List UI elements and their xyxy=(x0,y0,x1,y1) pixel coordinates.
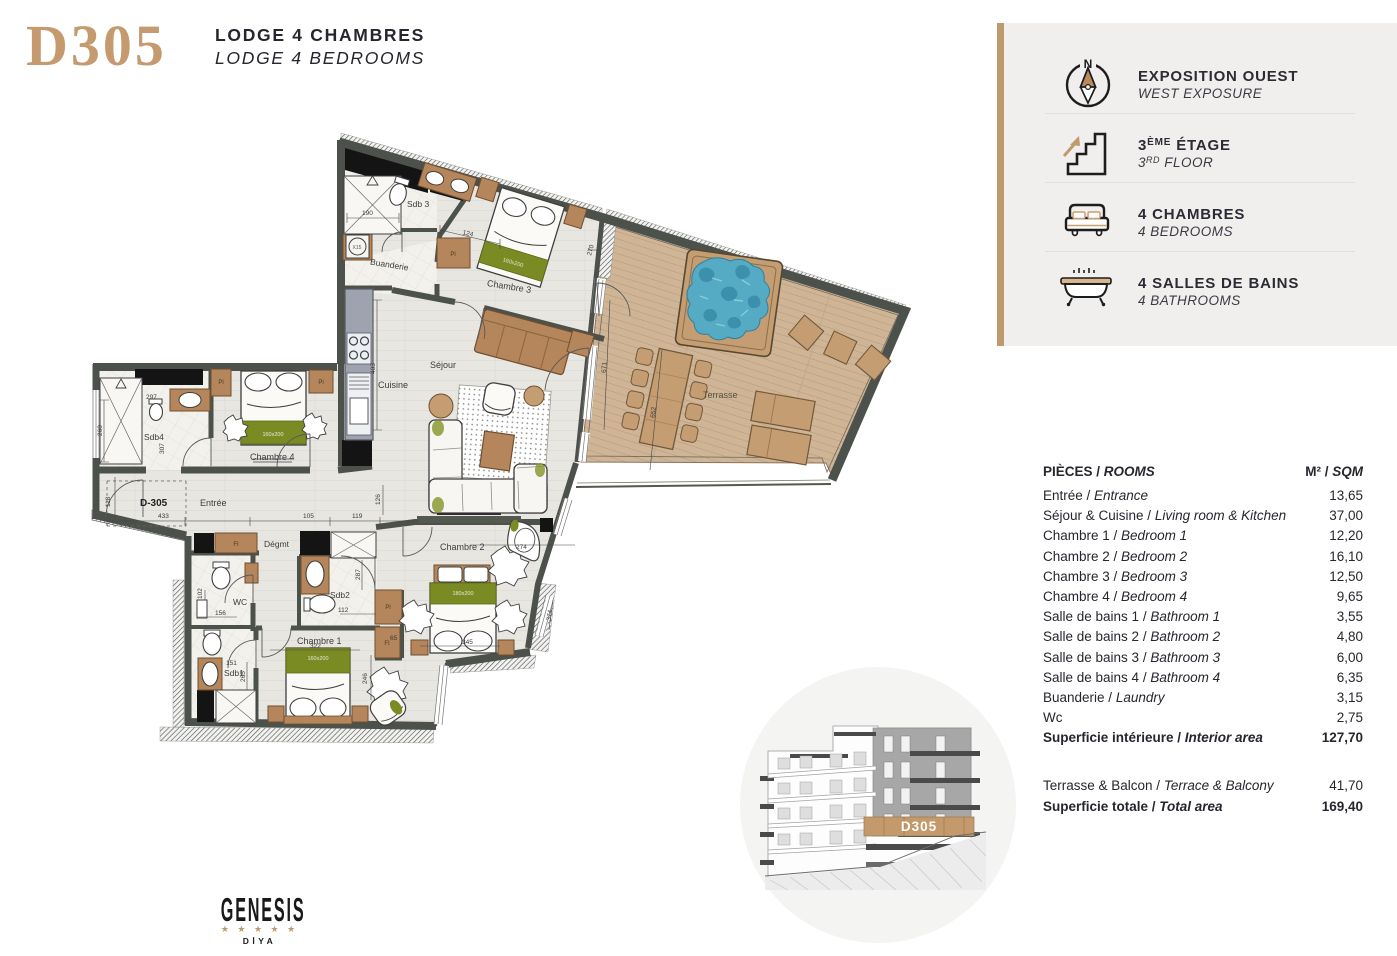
svg-text:Pl: Pl xyxy=(450,252,455,258)
svg-text:322: 322 xyxy=(310,643,321,650)
svg-text:274: 274 xyxy=(516,544,527,551)
svg-text:WC: WC xyxy=(233,597,247,607)
svg-text:287: 287 xyxy=(355,569,362,580)
svg-text:Entrée: Entrée xyxy=(200,498,227,508)
svg-text:433: 433 xyxy=(158,513,169,520)
svg-text:Séjour: Séjour xyxy=(430,360,456,370)
svg-text:112: 112 xyxy=(338,607,349,614)
svg-text:Cuisine: Cuisine xyxy=(378,380,408,390)
svg-text:151: 151 xyxy=(226,660,237,667)
svg-text:190: 190 xyxy=(362,210,373,217)
svg-text:FI: FI xyxy=(233,542,239,548)
svg-text:Pl: Pl xyxy=(218,380,223,386)
svg-text:246: 246 xyxy=(362,673,369,684)
svg-text:160x200: 160x200 xyxy=(307,656,328,662)
svg-text:Chambre 4: Chambre 4 xyxy=(250,452,295,462)
svg-text:374: 374 xyxy=(546,609,555,621)
svg-text:260: 260 xyxy=(97,425,104,436)
svg-text:Terrasse: Terrasse xyxy=(703,390,738,400)
svg-text:118: 118 xyxy=(105,496,112,507)
svg-text:307: 307 xyxy=(159,443,166,454)
svg-text:119: 119 xyxy=(352,513,363,520)
svg-text:Chambre 2: Chambre 2 xyxy=(440,542,485,552)
svg-text:102: 102 xyxy=(197,588,204,599)
svg-text:Pl: Pl xyxy=(318,380,323,386)
svg-text:D-305: D-305 xyxy=(140,498,168,509)
svg-text:Sdb 3: Sdb 3 xyxy=(407,199,429,209)
svg-text:105: 105 xyxy=(303,513,314,520)
svg-text:Sdb4: Sdb4 xyxy=(144,432,164,442)
svg-text:Sdb2: Sdb2 xyxy=(330,590,350,600)
svg-text:297: 297 xyxy=(146,394,157,401)
svg-text:X15: X15 xyxy=(353,245,362,251)
svg-text:403: 403 xyxy=(370,363,377,374)
svg-text:652: 652 xyxy=(650,406,658,418)
svg-text:Dégmt: Dégmt xyxy=(264,539,290,549)
svg-text:180x200: 180x200 xyxy=(452,591,473,597)
svg-text:671: 671 xyxy=(601,361,609,373)
svg-text:126: 126 xyxy=(375,494,382,505)
svg-text:265: 265 xyxy=(240,671,247,682)
svg-text:156: 156 xyxy=(215,610,226,617)
svg-text:345: 345 xyxy=(462,639,473,646)
svg-text:Pl: Pl xyxy=(385,605,390,611)
svg-text:160x200: 160x200 xyxy=(262,432,283,438)
svg-text:65: 65 xyxy=(390,635,398,642)
